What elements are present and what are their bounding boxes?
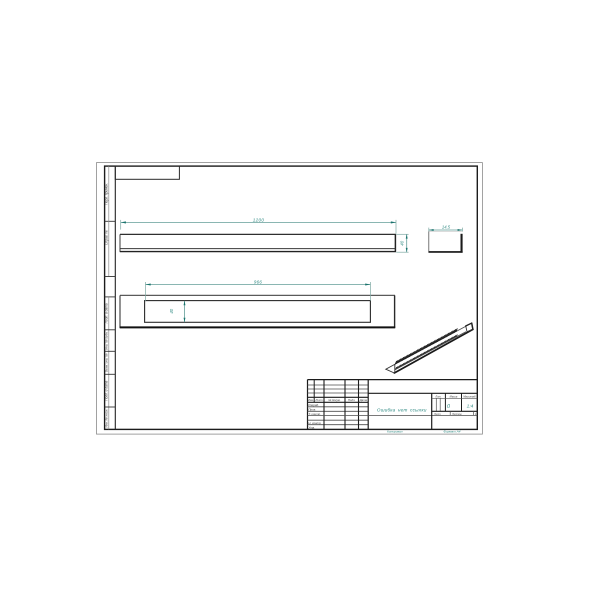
svg-text:Пров.: Пров.	[308, 407, 316, 411]
svg-text:Справ. №: Справ. №	[105, 230, 109, 245]
svg-text:Перв. примен.: Перв. примен.	[105, 183, 109, 205]
svg-text:Лист: Лист	[433, 412, 442, 416]
svg-text:Подп. и дата: Подп. и дата	[105, 303, 109, 323]
svg-text:Подп. и дата: Подп. и дата	[105, 381, 109, 401]
svg-text:Утв.: Утв.	[308, 425, 315, 429]
svg-text:0: 0	[447, 404, 450, 410]
svg-text:1:4: 1:4	[467, 404, 474, 410]
svg-text:Лист: Лист	[314, 398, 323, 402]
svg-text:Взам. инв. №: Взам. инв. №	[105, 353, 109, 372]
svg-text:Масштаб: Масштаб	[463, 394, 476, 398]
svg-text:Копировал: Копировал	[387, 429, 403, 433]
svg-text:Инв. № дубл.: Инв. № дубл.	[105, 331, 109, 350]
svg-text:Разраб.: Разраб.	[308, 403, 319, 407]
svg-text:Инв. № подл.: Инв. № подл.	[105, 409, 109, 428]
svg-text:Лит.: Лит.	[434, 394, 441, 398]
svg-text:Н. контр.: Н. контр.	[308, 421, 321, 425]
svg-text:966: 966	[254, 279, 262, 284]
svg-text:№ докум.: № докум.	[328, 398, 341, 402]
svg-text:Подп.: Подп.	[348, 398, 356, 402]
svg-text:Ошибка нет ссылки: Ошибка нет ссылки	[377, 407, 427, 412]
svg-text:40: 40	[169, 308, 174, 313]
svg-text:Формат А4: Формат А4	[444, 429, 461, 433]
svg-text:Листов: Листов	[451, 412, 462, 416]
svg-text:40: 40	[399, 240, 404, 245]
svg-text:14,5: 14,5	[442, 224, 451, 229]
svg-text:Масса: Масса	[450, 394, 458, 398]
svg-text:1200: 1200	[253, 217, 265, 222]
svg-text:Дата: Дата	[359, 398, 368, 402]
svg-text:Изм.: Изм.	[308, 398, 314, 402]
